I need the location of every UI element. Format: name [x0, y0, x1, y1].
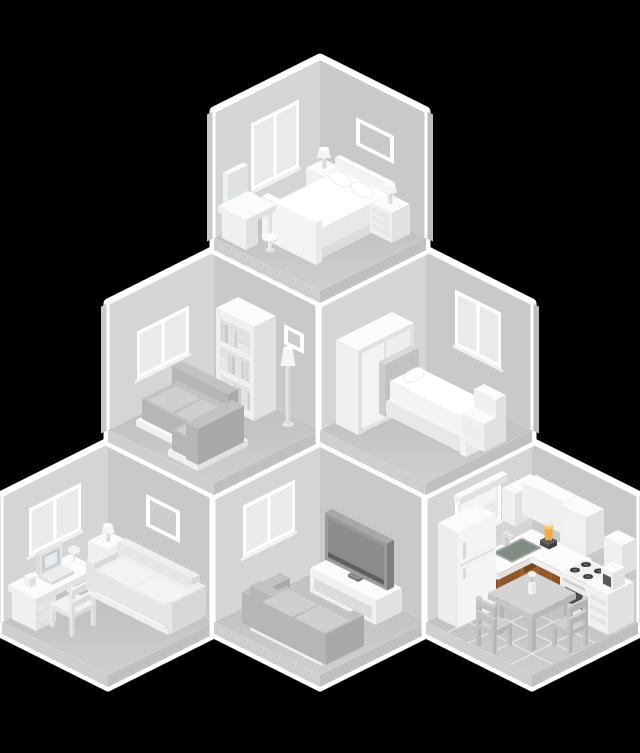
- window-mullion: [477, 304, 480, 354]
- book: [229, 325, 234, 347]
- lamp-shade-top: [385, 182, 395, 187]
- right-face: [387, 540, 394, 591]
- book: [228, 352, 231, 373]
- window-mullion: [268, 496, 271, 542]
- right-face: [570, 635, 573, 654]
- lamp-stem: [388, 192, 393, 204]
- book: [235, 329, 238, 348]
- left-face: [50, 608, 53, 627]
- lamp-shade-top: [104, 523, 113, 527]
- right-face: [586, 627, 589, 646]
- left-face: [186, 423, 198, 465]
- right-face: [555, 627, 558, 646]
- right-face: [254, 316, 276, 421]
- left-face: [552, 627, 555, 646]
- left-face: [388, 193, 390, 204]
- left-face: [86, 560, 94, 593]
- right-face: [324, 158, 326, 169]
- book: [245, 361, 249, 383]
- left-face: [322, 158, 324, 169]
- right-face: [494, 635, 497, 654]
- burner-center: [586, 576, 590, 578]
- left-face: [507, 627, 510, 646]
- left-face: [379, 362, 385, 417]
- window-mullion: [54, 499, 57, 541]
- left-face: [106, 533, 108, 542]
- desk-cup: [24, 573, 36, 588]
- left-face: [583, 627, 586, 646]
- book: [225, 324, 229, 344]
- book: [221, 321, 224, 342]
- chair-leg: [568, 634, 573, 655]
- blender: [544, 522, 553, 540]
- right-face: [108, 533, 110, 542]
- burner-center: [573, 569, 577, 571]
- left-face: [568, 635, 571, 654]
- left-face: [528, 583, 532, 595]
- window-mullion: [162, 322, 165, 364]
- left-face: [70, 618, 73, 637]
- left-face: [316, 629, 326, 665]
- left-face: [502, 533, 505, 547]
- window-mullion: [274, 115, 277, 177]
- lamp-stem: [286, 365, 291, 425]
- left-face: [91, 607, 94, 626]
- lamp-stem: [322, 157, 327, 169]
- left-face: [36, 553, 40, 576]
- book: [242, 361, 245, 380]
- left-face: [476, 627, 479, 646]
- fridge-handle: [463, 568, 466, 580]
- chair-leg: [70, 617, 75, 638]
- chair-leg: [492, 634, 497, 655]
- lamp-shade-top: [284, 346, 293, 350]
- right-face: [532, 583, 536, 595]
- book: [248, 392, 251, 411]
- burner-center: [584, 564, 588, 566]
- right-face: [288, 366, 290, 425]
- left-face: [492, 635, 495, 654]
- vase: [528, 581, 536, 595]
- right-face: [479, 627, 482, 646]
- left-face: [164, 599, 172, 632]
- burner-center: [597, 570, 601, 572]
- left-face: [336, 340, 358, 435]
- left-face: [286, 366, 288, 425]
- right-face: [94, 607, 97, 626]
- fridge-handle: [463, 542, 466, 560]
- lamp-stem: [106, 532, 111, 542]
- left-face: [438, 523, 458, 628]
- house-cutaway-scene: [0, 0, 640, 753]
- stool-seat: [262, 233, 278, 241]
- book: [236, 356, 241, 378]
- room-master-bedroom: [207, 58, 433, 303]
- flower: [528, 571, 536, 577]
- desk-lamp-dome: [68, 546, 80, 555]
- left-face: [502, 488, 515, 527]
- right-face: [72, 618, 75, 637]
- lamp-shade-top: [319, 147, 329, 152]
- right-face: [510, 627, 513, 646]
- book: [232, 356, 236, 376]
- isometric-house-illustration: [0, 0, 640, 753]
- blender-lid: [544, 522, 553, 526]
- right-face: [53, 608, 56, 627]
- right-face: [390, 193, 392, 204]
- right-face: [316, 220, 322, 265]
